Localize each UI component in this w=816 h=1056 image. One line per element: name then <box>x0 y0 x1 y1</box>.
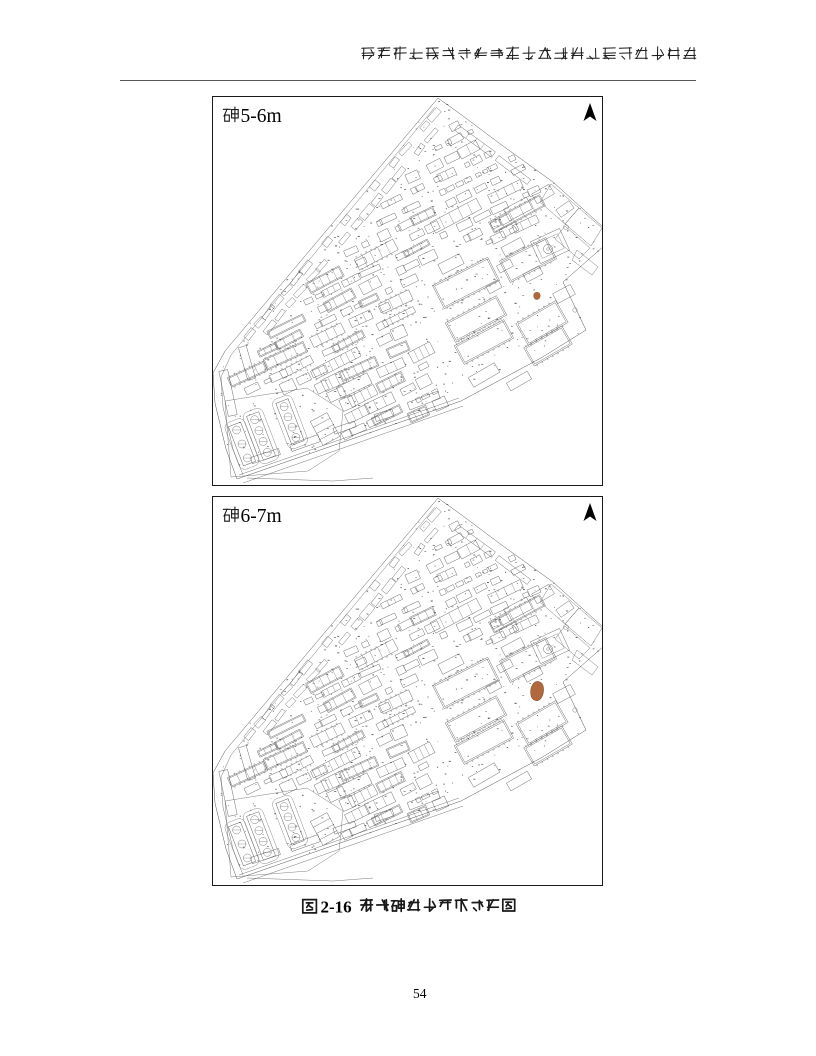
svg-text:6-7m: 6-7m <box>241 506 282 527</box>
svg-text:2-16: 2-16 <box>321 898 352 917</box>
svg-text:5-6m: 5-6m <box>241 106 282 127</box>
